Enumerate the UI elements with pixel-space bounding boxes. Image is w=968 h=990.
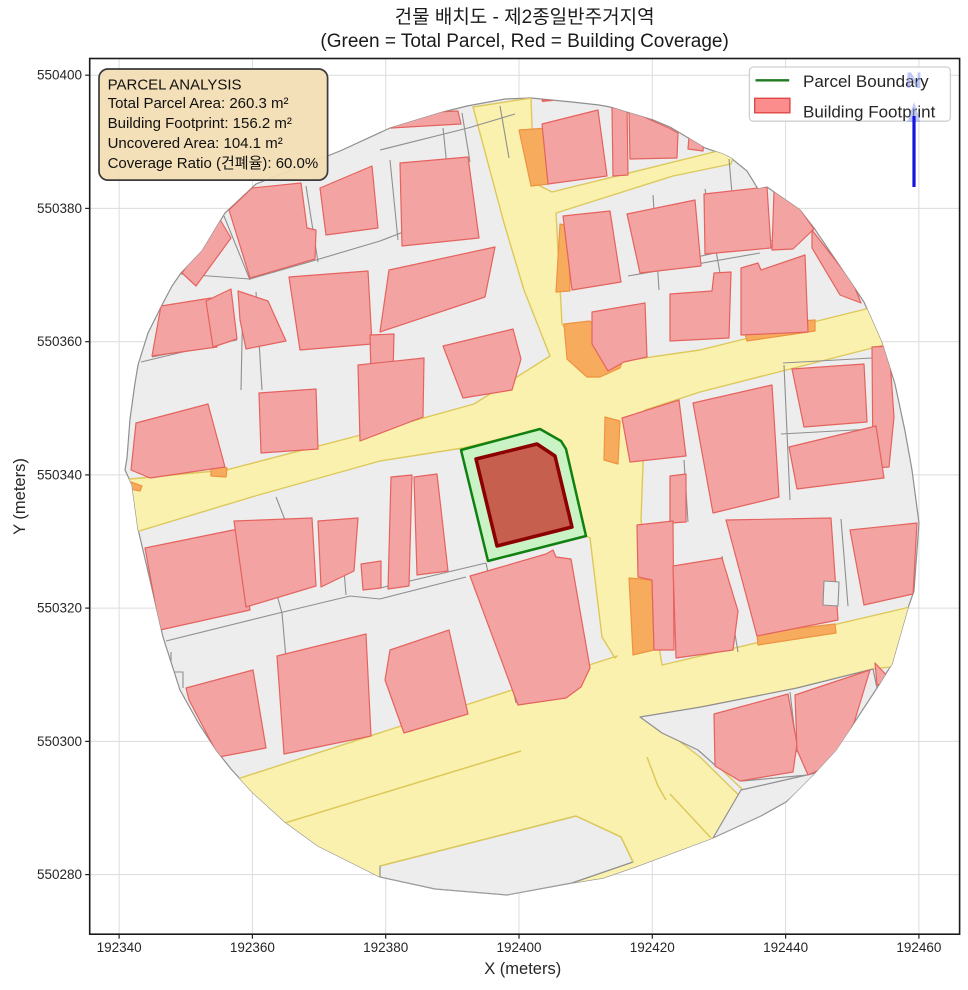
svg-text:192380: 192380 — [363, 940, 408, 955]
svg-text:Y (meters): Y (meters) — [11, 458, 29, 535]
svg-text:550320: 550320 — [37, 601, 82, 616]
svg-text:550340: 550340 — [37, 467, 82, 482]
svg-text:PARCEL ANALYSIS: PARCEL ANALYSIS — [108, 77, 242, 94]
svg-text:건물 배치도 - 제2종일반주거지역: 건물 배치도 - 제2종일반주거지역 — [395, 6, 655, 28]
svg-text:Building Footprint: 156.2 m²: Building Footprint: 156.2 m² — [108, 115, 292, 132]
svg-text:192360: 192360 — [230, 940, 275, 955]
svg-text:192440: 192440 — [763, 940, 808, 955]
svg-text:192400: 192400 — [496, 940, 541, 955]
svg-text:(Green = Total Parcel, Red = B: (Green = Total Parcel, Red = Building Co… — [320, 31, 728, 52]
svg-text:550400: 550400 — [37, 68, 82, 83]
svg-text:550360: 550360 — [37, 334, 82, 349]
svg-text:Uncovered Area: 104.1 m²: Uncovered Area: 104.1 m² — [108, 135, 283, 152]
svg-text:550300: 550300 — [37, 734, 82, 749]
svg-text:N: N — [906, 68, 922, 93]
svg-text:X (meters): X (meters) — [484, 960, 561, 978]
svg-text:550380: 550380 — [37, 201, 82, 216]
svg-text:192460: 192460 — [896, 940, 941, 955]
svg-text:Total Parcel Area: 260.3 m²: Total Parcel Area: 260.3 m² — [108, 95, 289, 112]
svg-text:192420: 192420 — [630, 940, 675, 955]
svg-text:550280: 550280 — [37, 867, 82, 882]
svg-text:192340: 192340 — [97, 940, 142, 955]
svg-text:Coverage Ratio (건폐율): 60.0%: Coverage Ratio (건폐율): 60.0% — [108, 155, 319, 172]
